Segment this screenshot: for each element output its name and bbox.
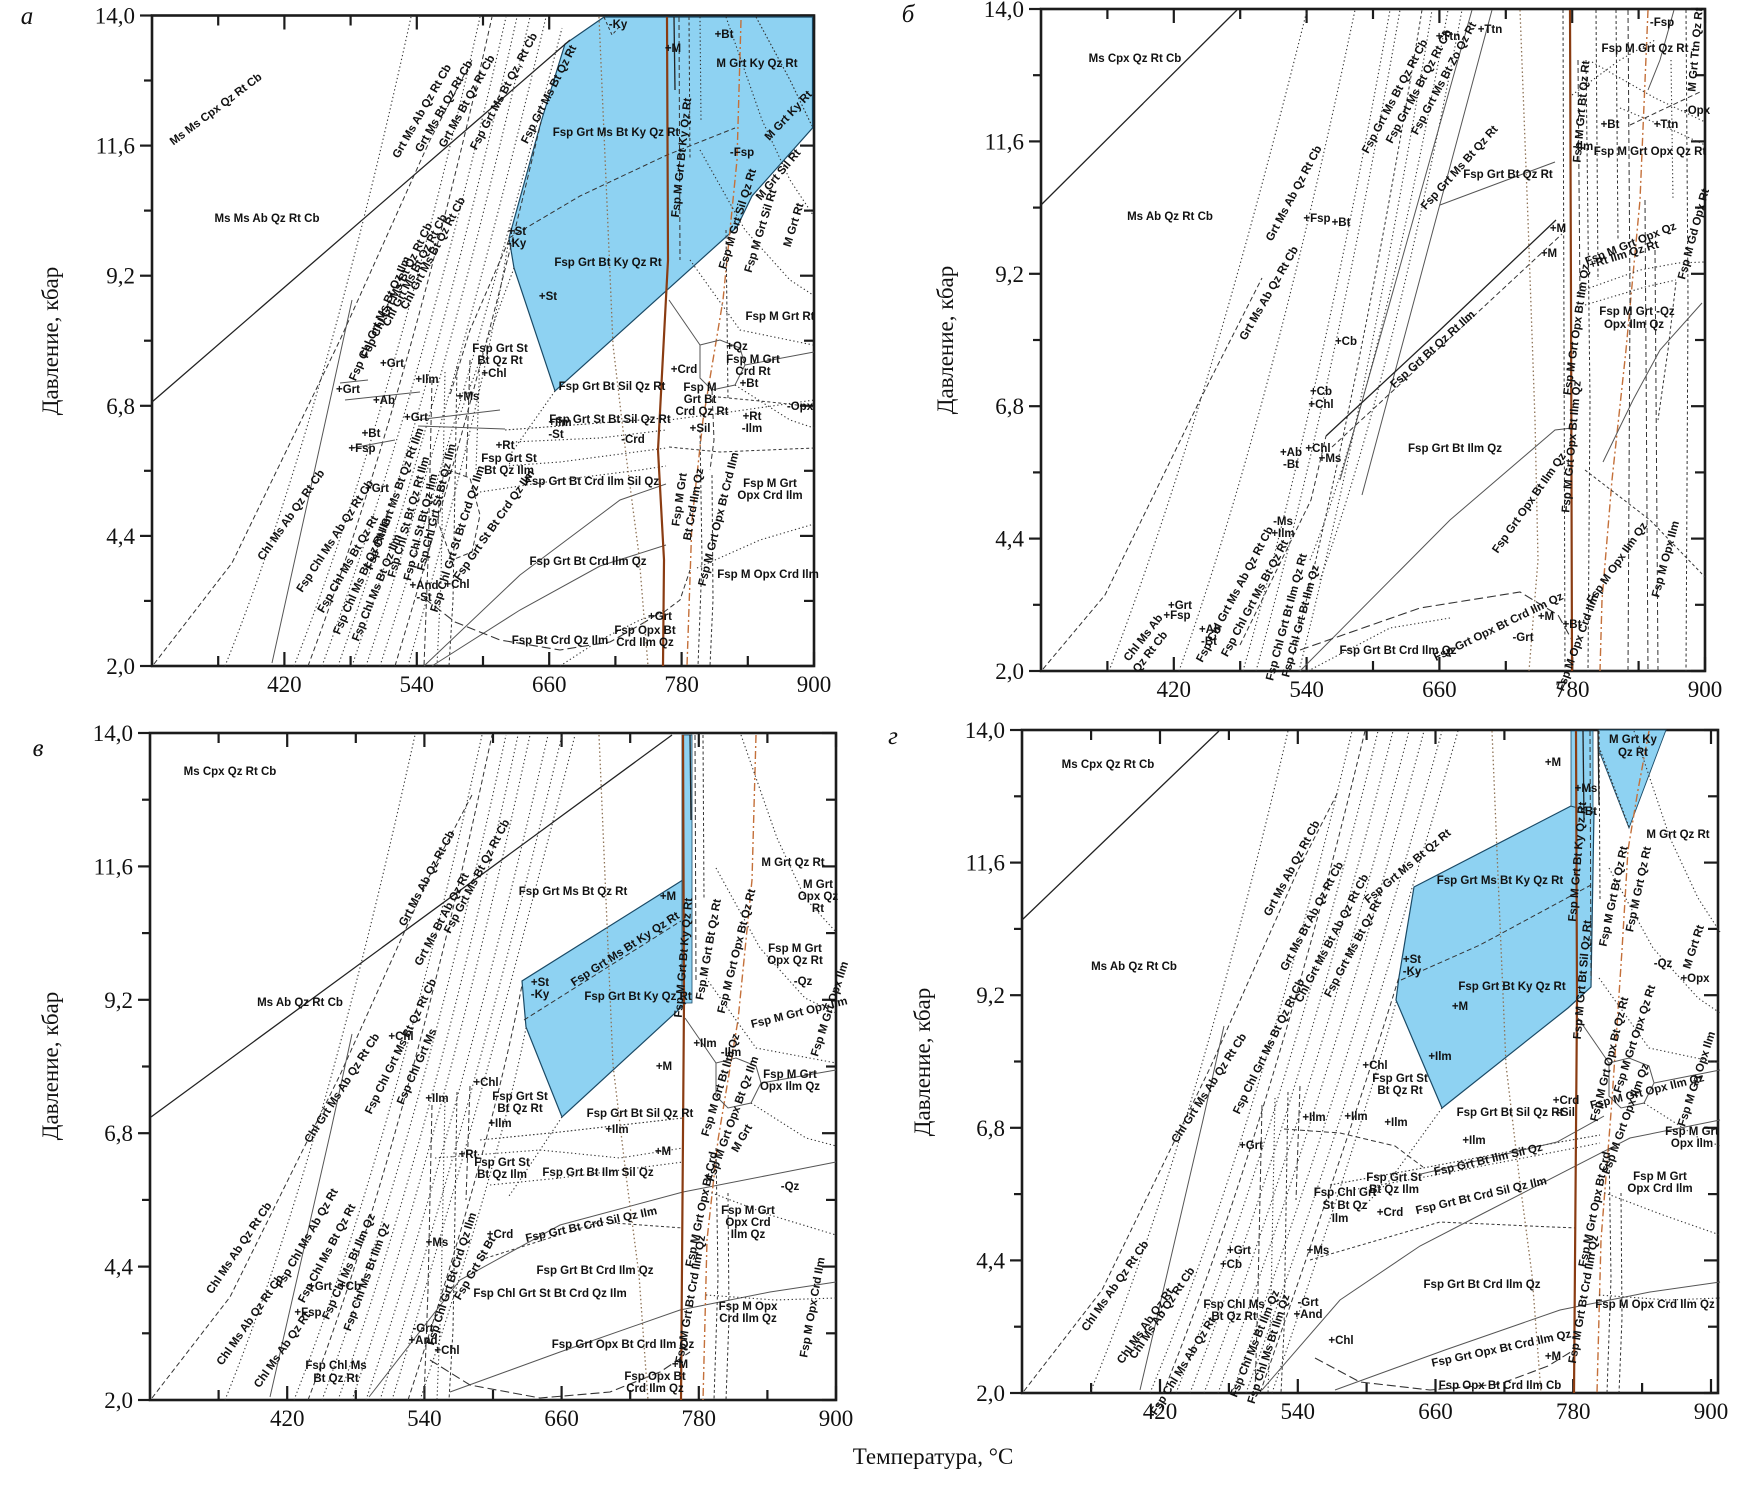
svg-text:+Crd: +Crd [671,364,698,376]
svg-text:Ilm Qz: Ilm Qz [731,1229,766,1241]
svg-text:420: 420 [1157,677,1192,702]
svg-text:+Fsp: +Fsp [294,1307,321,1319]
svg-text:+And: +And [409,580,438,592]
svg-text:г: г [888,723,898,750]
svg-text:Crd Qz Rt: Crd Qz Rt [675,406,728,418]
svg-text:+St: +St [531,977,549,989]
svg-text:Grt Bt: Grt Bt [684,394,717,406]
svg-text:+M: +M [656,1061,672,1073]
svg-text:Fsp M Grt -Qz: Fsp M Grt -Qz [1599,306,1675,318]
svg-text:+M: +M [1545,1351,1561,1363]
svg-text:-St: -St [548,429,564,441]
svg-text:Fsp M: Fsp M [683,382,716,394]
svg-text:Fsp Grt Ms Bt Ky Qz Rt: Fsp Grt Ms Bt Ky Qz Rt [553,127,680,139]
svg-text:Bt Qz Rt: Bt Qz Rt [1211,1311,1257,1323]
svg-text:+Ilm: +Ilm [425,1093,448,1105]
svg-text:-Ky: -Ky [609,19,628,31]
svg-text:Fsp M Opx: Fsp M Opx [719,1301,778,1313]
svg-text:M Grt Qz Rt: M Grt Qz Rt [761,857,824,869]
svg-text:Давление, кбар: Давление, кбар [38,992,63,1140]
svg-text:+Ilm: +Ilm [1344,1111,1367,1123]
svg-text:2,0: 2,0 [995,659,1024,684]
svg-text:+Ilm: +Ilm [1462,1135,1485,1147]
svg-text:+Chl: +Chl [1308,399,1333,411]
svg-text:+Ilm: +Ilm [1428,1051,1451,1063]
svg-text:-Crd: -Crd [621,434,645,446]
svg-text:-Ilm: -Ilm [1573,141,1593,153]
svg-text:+Bt: +Bt [740,378,759,390]
svg-text:Opx Qz Rt: Opx Qz Rt [767,955,823,967]
svg-text:Fsp Grt St: Fsp Grt St [474,1157,530,1169]
svg-text:Opx Crd Ilm: Opx Crd Ilm [1627,1183,1692,1195]
svg-text:2,0: 2,0 [106,654,135,679]
svg-text:+Grt: +Grt [404,412,428,424]
svg-text:11,6: 11,6 [985,129,1024,154]
svg-text:-St: -St [416,592,432,604]
svg-text:-Ky: -Ky [508,238,527,250]
svg-text:6,8: 6,8 [106,394,135,419]
svg-text:+Ms: +Ms [426,1237,449,1249]
svg-text:-Opx: -Opx [1684,105,1711,117]
svg-text:+Chl: +Chl [444,579,469,591]
svg-text:+Ilm: +Ilm [488,1118,511,1130]
svg-text:Ms Ms Ab Qz Rt Cb: Ms Ms Ab Qz Rt Cb [215,213,320,225]
svg-text:+Chl: +Chl [481,368,506,380]
svg-text:+Chl: +Chl [1362,1060,1387,1072]
svg-text:+M: +M [660,891,676,903]
svg-text:Fsp Grt Bt Sil Qz Rt: Fsp Grt Bt Sil Qz Rt [587,1108,694,1120]
svg-text:Fsp M Grt: Fsp M Grt [743,478,797,490]
svg-text:Fsp Chl Ms: Fsp Chl Ms [305,1360,366,1372]
svg-text:Bt Qz Ilm: Bt Qz Ilm [477,1169,527,1181]
svg-text:Fsp M Grt: Fsp M Grt [726,354,780,366]
svg-text:Fsp Grt Bt Crd Ilm Qz: Fsp Grt Bt Crd Ilm Qz [530,556,647,568]
svg-text:+Crd: +Crd [1377,1207,1404,1219]
svg-text:9,2: 9,2 [976,983,1005,1008]
svg-text:Crd Ilm Qz: Crd Ilm Qz [719,1313,777,1325]
svg-text:M Grt Qz Rt: M Grt Qz Rt [1646,829,1709,841]
svg-text:Opx Ilm: Opx Ilm [1671,1138,1713,1150]
svg-text:540: 540 [1289,677,1324,702]
svg-text:+M: +M [1538,611,1554,623]
svg-text:+Ms: +Ms [1575,783,1598,795]
svg-text:+M: +M [1541,248,1557,260]
svg-text:+Rt: +Rt [496,440,515,452]
svg-text:Fsp Grt St: Fsp Grt St [1372,1073,1428,1085]
svg-text:780: 780 [664,672,699,697]
svg-text:+And: +And [1293,1309,1322,1321]
svg-text:Fsp M Opx Crd Ilm: Fsp M Opx Crd Ilm [717,569,819,581]
svg-text:а: а [21,3,34,30]
svg-text:-Fsp: -Fsp [1650,17,1674,29]
svg-text:Fsp Grt Bt Ky Qz Rt: Fsp Grt Bt Ky Qz Rt [1458,981,1566,993]
svg-text:Fsp M Grt: Fsp M Grt [768,943,822,955]
svg-text:Fsp Grt St: Fsp Grt St [492,1091,548,1103]
svg-text:4,4: 4,4 [976,1248,1005,1273]
svg-text:Fsp Chl Grt St Bt Crd Qz Ilm: Fsp Chl Grt St Bt Crd Qz Ilm [473,1288,626,1300]
svg-text:+Qz: +Qz [726,341,748,353]
svg-text:в: в [33,735,44,762]
svg-text:Bt Qz Rt: Bt Qz Rt [1377,1085,1423,1097]
svg-text:+St: +St [539,291,557,303]
svg-text:Давление, кбар: Давление, кбар [38,267,63,415]
svg-text:-Sil: -Sil [1557,1107,1575,1119]
svg-text:+Grt: +Grt [1227,1245,1251,1257]
svg-text:Crd Ilm Qz: Crd Ilm Qz [616,637,674,649]
svg-text:+Bt: +Bt [362,428,381,440]
svg-text:4,4: 4,4 [104,1255,133,1280]
svg-text:+Cb: +Cb [1335,336,1357,348]
svg-text:Fsp Grt St: Fsp Grt St [1366,1172,1422,1184]
svg-text:900: 900 [1688,677,1723,702]
svg-text:+Grt: +Grt [336,384,360,396]
svg-text:-Qz: -Qz [781,1181,800,1193]
svg-text:Crd Ilm Qz: Crd Ilm Qz [626,1383,684,1395]
svg-text:Fsp Grt Bt Crd Ilm Sil Qz: Fsp Grt Bt Crd Ilm Sil Qz [525,476,659,488]
svg-text:Fsp Grt St: Fsp Grt St [481,453,537,465]
svg-text:+Grt: +Grt [1239,1140,1263,1152]
svg-text:+Ab: +Ab [373,395,395,407]
svg-text:Ms Cpx Qz Rt Cb: Ms Cpx Qz Rt Cb [1062,759,1155,771]
svg-text:Температура, °С: Температура, °С [853,1444,1014,1469]
svg-text:M Grt Ky Qz Rt: M Grt Ky Qz Rt [716,58,797,70]
svg-text:Fsp Grt Bt Sil Qz Rt: Fsp Grt Bt Sil Qz Rt [559,381,666,393]
svg-text:Fsp Grt Opx Bt Crd Ilm Qz: Fsp Grt Opx Bt Crd Ilm Qz [552,1339,695,1351]
svg-text:Rt: Rt [812,903,824,915]
svg-text:+St: +St [508,226,526,238]
svg-text:+Fsp: +Fsp [348,443,375,455]
svg-text:660: 660 [544,1406,579,1431]
svg-text:+Ilm: +Ilm [415,374,438,386]
svg-text:+Chl: +Chl [473,1077,498,1089]
svg-text:+Ttn: +Ttn [1478,24,1503,36]
svg-text:660: 660 [1418,1399,1453,1424]
svg-text:6,8: 6,8 [995,394,1024,419]
svg-text:+Ilm: +Ilm [548,417,571,429]
svg-text:11,6: 11,6 [966,851,1005,876]
svg-text:+Crd: +Crd [1553,1095,1580,1107]
svg-text:-Bt: -Bt [1283,459,1299,471]
svg-text:4,4: 4,4 [106,524,135,549]
svg-text:+Bt: +Bt [1601,119,1620,131]
svg-text:+Ms: +Ms [1307,1245,1330,1257]
svg-text:Fsp M Grt: Fsp M Grt [763,1069,817,1081]
svg-text:-Ilm: -Ilm [742,423,762,435]
svg-text:+M: +M [1550,223,1566,235]
svg-text:900: 900 [1694,1399,1729,1424]
svg-text:Bt Qz Rt: Bt Qz Rt [497,1103,543,1115]
svg-text:2,0: 2,0 [976,1381,1005,1406]
svg-text:780: 780 [1556,1399,1591,1424]
svg-text:Fsp Grt Bt Qz Rt: Fsp Grt Bt Qz Rt [1463,169,1553,181]
svg-text:660: 660 [1422,677,1457,702]
svg-text:900: 900 [797,672,832,697]
svg-text:+Fsp: +Fsp [1303,213,1330,225]
svg-text:+Ilm: +Ilm [605,1124,628,1136]
svg-text:+Grt: +Grt [380,358,404,370]
svg-text:2,0: 2,0 [104,1388,133,1413]
svg-text:+Ilm: +Ilm [1384,1117,1407,1129]
svg-text:+Chl: +Chl [388,1031,413,1043]
svg-text:Crd Rt: Crd Rt [735,366,770,378]
svg-text:-Qz: -Qz [1654,958,1673,970]
svg-text:+Ms: +Ms [1319,453,1342,465]
svg-text:+Opx: +Opx [1680,973,1710,985]
svg-text:-Fsp: -Fsp [730,147,754,159]
svg-text:Ilm: Ilm [1332,1213,1349,1225]
svg-text:Fsp Grt St: Fsp Grt St [472,343,528,355]
svg-text:-Qz: -Qz [794,976,813,988]
svg-text:St Bt Qz: St Bt Qz [1323,1200,1368,1212]
svg-text:+Ilm: +Ilm [1302,1112,1325,1124]
svg-text:+M: +M [1452,1001,1468,1013]
svg-text:420: 420 [270,1406,305,1431]
svg-text:+Bt: +Bt [1332,217,1351,229]
svg-text:900: 900 [819,1406,854,1431]
svg-text:540: 540 [407,1406,442,1431]
svg-text:-Grt: -Grt [1512,632,1533,644]
svg-text:Fsp M Grt Qz Rt: Fsp M Grt Qz Rt [1602,43,1689,55]
svg-text:Fsp M Grt Opx Qz Rt: Fsp M Grt Opx Qz Rt [1594,146,1707,158]
svg-text:Fsp Grt Bt Ky Qz Rt: Fsp Grt Bt Ky Qz Rt [554,257,662,269]
svg-text:-Ky: -Ky [531,989,550,1001]
svg-text:+Fsp: +Fsp [1163,610,1190,622]
svg-text:+Ttn: +Ttn [1654,119,1679,131]
svg-text:Fsp Grt Bt Sil Qz Rt: Fsp Grt Bt Sil Qz Rt [1457,1107,1564,1119]
svg-text:+St: +St [1403,954,1421,966]
svg-text:Ms Ab Qz Rt Cb: Ms Ab Qz Rt Cb [1127,211,1213,223]
svg-text:+M: +M [665,43,681,55]
svg-text:Opx Qz: Opx Qz [798,891,839,903]
svg-text:Fsp Opx Bt Crd Ilm Cb: Fsp Opx Bt Crd Ilm Cb [1439,1380,1562,1392]
svg-text:-Opx: -Opx [787,401,814,413]
svg-text:14,0: 14,0 [93,721,133,746]
svg-text:+Chl: +Chl [434,1345,459,1357]
svg-text:540: 540 [1281,1399,1316,1424]
svg-text:Opx Crd Ilm: Opx Crd Ilm [737,490,802,502]
svg-text:9,2: 9,2 [995,262,1024,287]
svg-text:11,6: 11,6 [96,134,135,159]
svg-text:14,0: 14,0 [95,4,135,29]
svg-text:Fsp Chl Grt: Fsp Chl Grt [1314,1187,1377,1199]
svg-text:6,8: 6,8 [976,1116,1005,1141]
svg-text:780: 780 [682,1406,717,1431]
svg-text:+M: +M [672,1359,688,1371]
svg-text:660: 660 [532,672,567,697]
svg-text:6,8: 6,8 [104,1121,133,1146]
svg-text:Ms Ab Qz Rt Cb: Ms Ab Qz Rt Cb [257,997,343,1009]
svg-text:Fsp M Grt Rt: Fsp M Grt Rt [746,311,815,323]
svg-text:-Grt: -Grt [1297,1297,1318,1309]
svg-text:+Rt: +Rt [743,411,762,423]
svg-text:Fsp Grt Bt Ilm Qz: Fsp Grt Bt Ilm Qz [1408,443,1502,455]
svg-text:Fsp M Grt: Fsp M Grt [1633,1171,1687,1183]
svg-text:9,2: 9,2 [106,264,135,289]
svg-text:Ms Cpx Qz Rt Cb: Ms Cpx Qz Rt Cb [1089,53,1182,65]
svg-text:Fsp Chl Ms: Fsp Chl Ms [1203,1299,1264,1311]
svg-text:Fsp M Opx Crd Ilm Qz: Fsp M Opx Crd Ilm Qz [1595,1299,1715,1311]
svg-text:420: 420 [267,672,302,697]
svg-text:Давление, кбар: Давление, кбар [933,266,958,414]
svg-text:Fsp Grt Bt Ilm Sil Qz: Fsp Grt Bt Ilm Sil Qz [542,1167,653,1179]
svg-text:540: 540 [400,672,435,697]
svg-text:Fsp Opx Bt: Fsp Opx Bt [624,1371,686,1383]
svg-text:+Cb: +Cb [1220,1259,1242,1271]
svg-text:+Ilm: +Ilm [693,1038,716,1050]
svg-text:11,6: 11,6 [94,854,133,879]
svg-text:4,4: 4,4 [995,527,1024,552]
svg-text:Fsp Grt Ms Bt Qz Rt: Fsp Grt Ms Bt Qz Rt [519,886,628,898]
svg-text:M Grt: M Grt [803,879,833,891]
svg-text:Давление, кбар: Давление, кбар [910,988,935,1136]
svg-text:-Ms: -Ms [1273,516,1293,528]
svg-text:M Grt Ky: M Grt Ky [1609,734,1658,746]
svg-text:+Grt: +Grt [648,611,672,623]
svg-text:+Ab: +Ab [1280,447,1302,459]
svg-text:+Sil: +Sil [690,423,711,435]
svg-text:14,0: 14,0 [965,718,1005,743]
svg-text:Bt Qz Rt: Bt Qz Rt [313,1373,359,1385]
svg-text:Fsp M Grt: Fsp M Grt [721,1205,775,1217]
svg-text:Ms Ab Qz Rt Cb: Ms Ab Qz Rt Cb [1091,961,1177,973]
svg-text:+M: +M [1545,757,1561,769]
svg-text:+Cb: +Cb [1310,386,1332,398]
svg-text:Fsp Grt Ms Bt Ky Qz Rt: Fsp Grt Ms Bt Ky Qz Rt [1437,875,1564,887]
svg-text:Fsp M Grt: Fsp M Grt [1665,1126,1719,1138]
svg-text:Bt Qz Ilm: Bt Qz Ilm [1369,1184,1419,1196]
svg-text:+Ttn: +Ttn [1436,31,1461,43]
svg-text:Qz Rt: Qz Rt [1618,747,1648,759]
svg-text:Opx Crd: Opx Crd [725,1217,770,1229]
svg-text:14,0: 14,0 [984,0,1024,22]
svg-text:9,2: 9,2 [104,988,133,1013]
svg-text:Bt Qz Rt: Bt Qz Rt [477,355,523,367]
svg-text:+Ms: +Ms [457,391,480,403]
svg-text:+M: +M [655,1146,671,1158]
svg-text:Fsp Grt Bt Crd Ilm Qz: Fsp Grt Bt Crd Ilm Qz [1424,1279,1541,1291]
svg-text:Fsp Opx Bt: Fsp Opx Bt [614,625,676,637]
svg-text:-Ky: -Ky [1403,966,1422,978]
svg-text:Fsp Bt Crd Qz Ilm: Fsp Bt Crd Qz Ilm [512,635,608,647]
svg-text:Ms Cpx Qz Rt Cb: Ms Cpx Qz Rt Cb [184,766,277,778]
svg-text:Opx Ilm Qz: Opx Ilm Qz [1604,319,1664,331]
svg-text:+Bt: +Bt [715,29,734,41]
svg-text:б: б [902,1,916,28]
svg-text:Fsp Grt Bt Crd Ilm Qz: Fsp Grt Bt Crd Ilm Qz [537,1265,654,1277]
svg-text:+Chl: +Chl [1328,1335,1353,1347]
svg-text:Opx Ilm Qz: Opx Ilm Qz [760,1081,820,1093]
